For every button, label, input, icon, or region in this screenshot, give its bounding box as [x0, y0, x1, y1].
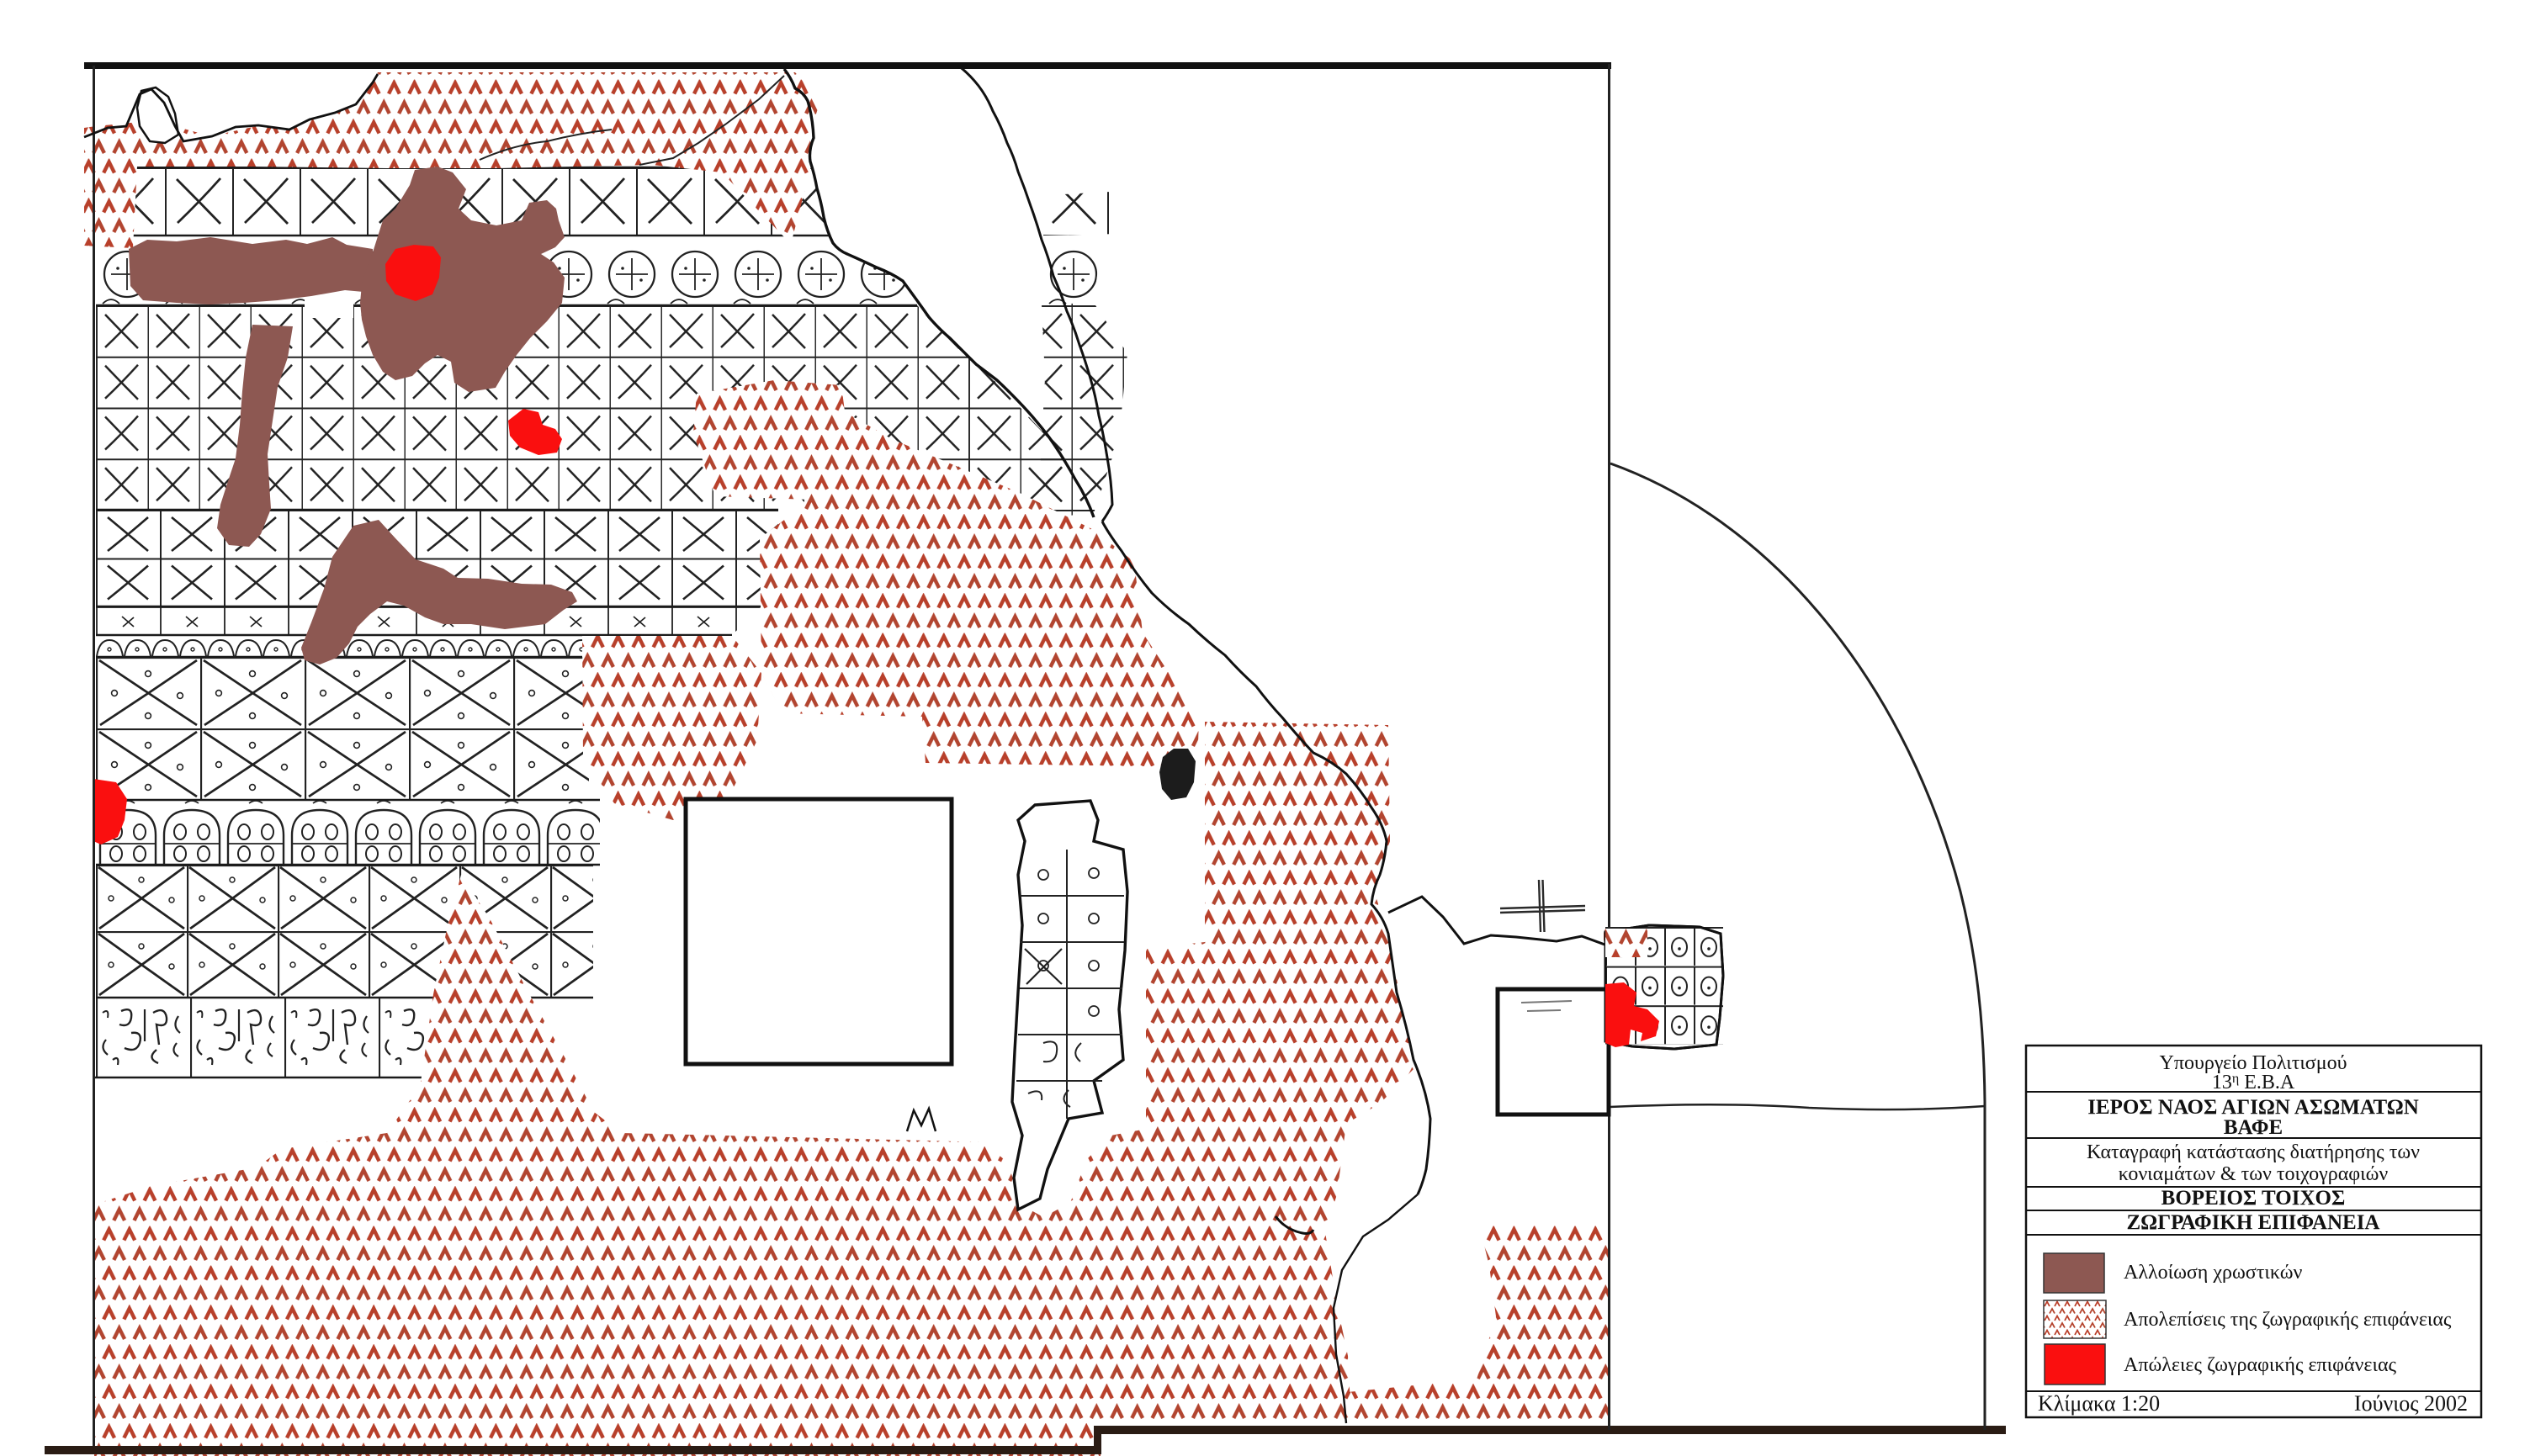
svg-text:Ιούνιος 2002: Ιούνιος 2002: [2354, 1391, 2468, 1416]
svg-text:13η Ε.Β.Α: 13η Ε.Β.Α: [2212, 1072, 2295, 1093]
svg-text:ΒΑΦΕ: ΒΑΦΕ: [2224, 1116, 2283, 1139]
svg-text:κονιαμάτων & των τοιχογραφιών: κονιαμάτων & των τοιχογραφιών: [2119, 1163, 2389, 1185]
svg-text:ΖΩΓΡΑΦΙΚΗ ΕΠΙΦΑΝΕΙΑ: ΖΩΓΡΑΦΙΚΗ ΕΠΙΦΑΝΕΙΑ: [2127, 1211, 2380, 1234]
svg-text:Κλίμακα 1:20: Κλίμακα 1:20: [2038, 1391, 2160, 1416]
svg-text:Απολεπίσεις της ζωγραφικής επι: Απολεπίσεις της ζωγραφικής επιφάνειας: [2124, 1309, 2452, 1331]
svg-text:ΙΕΡΟΣ ΝΑΟΣ ΑΓΙΩΝ ΑΣΩΜΑΤΩΝ: ΙΕΡΟΣ ΝΑΟΣ ΑΓΙΩΝ ΑΣΩΜΑΤΩΝ: [2087, 1096, 2419, 1119]
svg-text:Αλλοίωση χρωστικών: Αλλοίωση χρωστικών: [2124, 1262, 2302, 1284]
svg-text:Απώλειες ζωγραφικής επιφάνειας: Απώλειες ζωγραφικής επιφάνειας: [2124, 1354, 2397, 1376]
svg-text:Καταγραφή κατάστασης διατήρηση: Καταγραφή κατάστασης διατήρησης των: [2087, 1141, 2420, 1163]
svg-text:ΒΟΡΕΙΟΣ ΤΟΙΧΟΣ: ΒΟΡΕΙΟΣ ΤΟΙΧΟΣ: [2161, 1187, 2346, 1210]
